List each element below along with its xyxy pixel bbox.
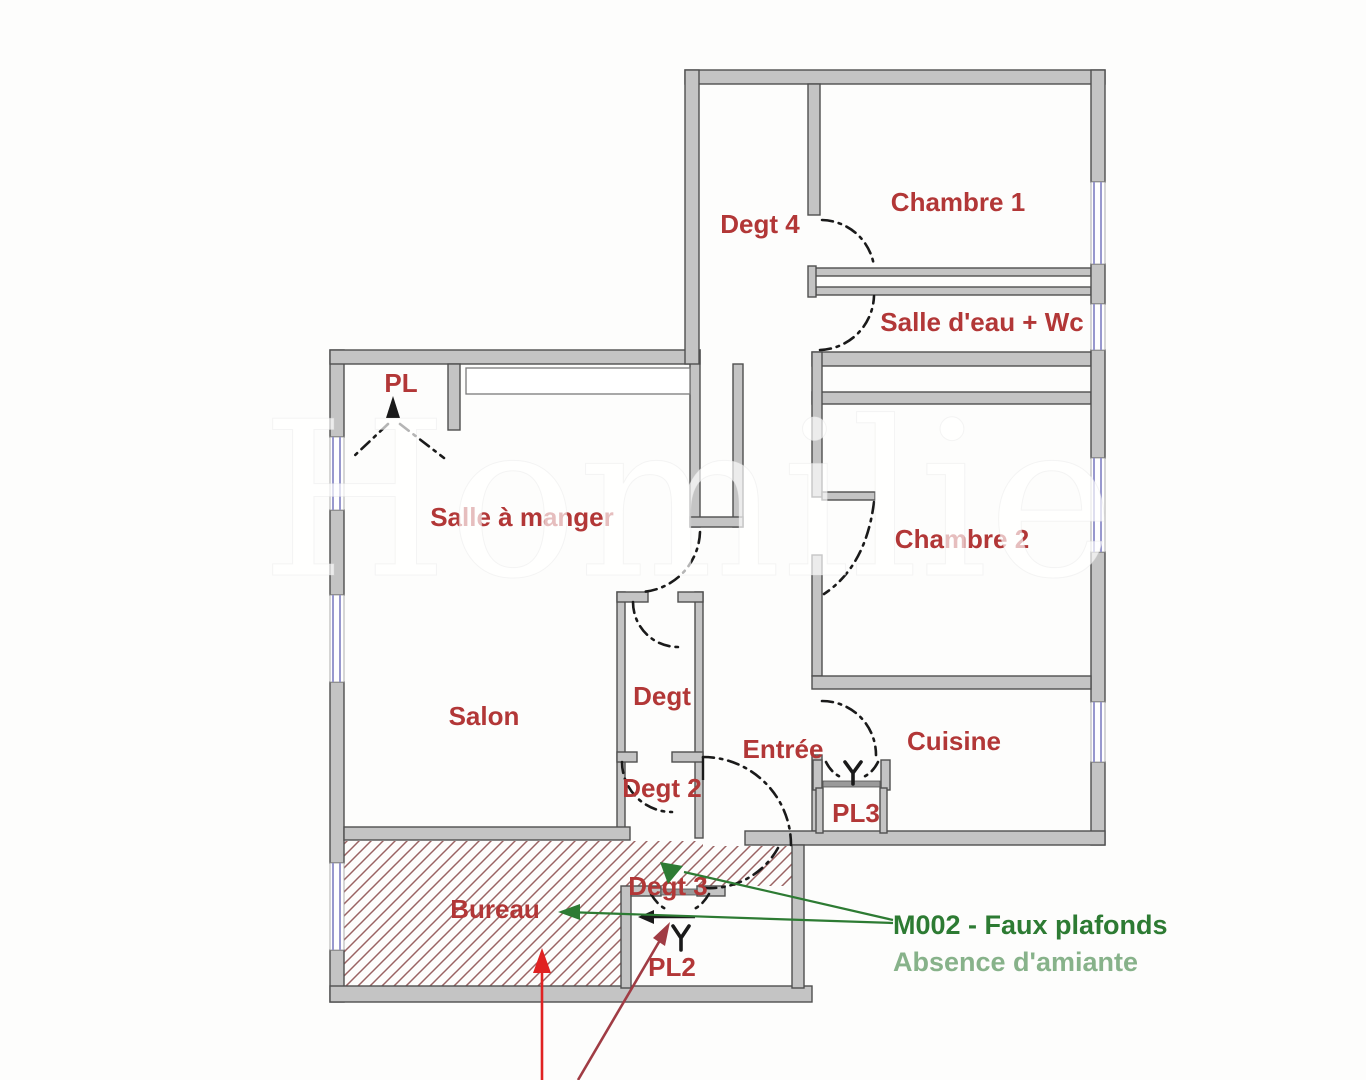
floor-plan-page: PL Degt 4 Chambre 1 Salle d'eau + Wc Sal…: [0, 0, 1366, 1080]
wall: [810, 268, 1091, 276]
watermark-text: Homilie: [261, 375, 1115, 626]
room-label-salon: Salon: [449, 701, 520, 731]
annotation-measure-label: M002 - Faux plafonds: [893, 910, 1168, 940]
wall: [617, 752, 637, 762]
wall: [812, 676, 1091, 689]
wall: [881, 760, 890, 790]
wall: [330, 682, 344, 863]
room-label-degt-2: Degt 2: [622, 773, 701, 803]
wall: [813, 760, 822, 790]
wall: [621, 886, 631, 988]
wall: [880, 788, 887, 833]
room-label-bureau: Bureau: [450, 894, 540, 924]
wall: [1091, 70, 1105, 182]
wall: [816, 788, 823, 833]
room-label-entree: Entrée: [743, 734, 824, 764]
wall: [672, 752, 703, 762]
wall: [1091, 264, 1105, 304]
room-label-pl2: PL2: [648, 952, 696, 982]
room-label-degt-4: Degt 4: [720, 209, 800, 239]
wall: [812, 352, 1091, 366]
room-label-pl3: PL3: [832, 798, 880, 828]
room-label-chambre-1: Chambre 1: [891, 187, 1025, 217]
wall: [816, 287, 1091, 295]
wall: [808, 84, 820, 215]
room-label-degt: Degt: [633, 681, 691, 711]
wall: [685, 70, 1105, 84]
room-label-salle-eau-wc: Salle d'eau + Wc: [880, 307, 1083, 337]
wall: [808, 266, 816, 297]
wall: [344, 827, 630, 840]
annotation-measure-sublabel: Absence d'amiante: [893, 947, 1138, 977]
wall: [330, 986, 812, 1002]
floor-plan-svg: PL Degt 4 Chambre 1 Salle d'eau + Wc Sal…: [0, 0, 1366, 1080]
room-label-cuisine: Cuisine: [907, 726, 1001, 756]
wall: [745, 831, 1105, 845]
wall: [792, 845, 804, 988]
wall: [330, 350, 700, 364]
wall: [685, 70, 699, 364]
